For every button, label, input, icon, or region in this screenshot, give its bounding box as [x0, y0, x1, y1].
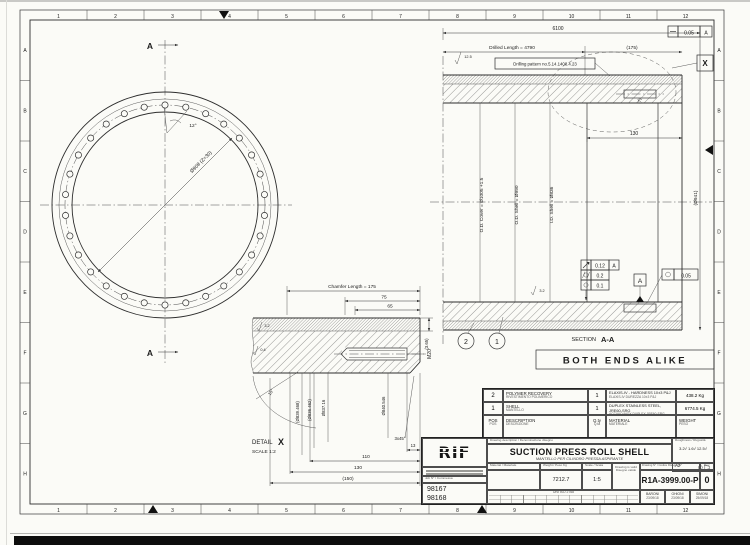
border-col-label: 9 — [513, 14, 516, 20]
bolt-hole — [141, 300, 147, 306]
dim-110: 110 — [362, 454, 370, 460]
fcf-roundness-value: 0.1 — [597, 284, 604, 290]
border-col-label: 5 — [285, 14, 288, 20]
bolt-hole — [261, 212, 267, 218]
overall-fcf: 0.05 A — [668, 26, 712, 37]
bolt-hole — [236, 135, 242, 141]
border-row-label: A — [717, 48, 721, 54]
border-col-label: 6 — [342, 14, 345, 20]
bolt-hole — [62, 212, 68, 218]
bom-header-desc: DESCRIPTION DESCRIZIONE — [503, 415, 588, 438]
job-number: 98167 — [427, 485, 482, 494]
bolt-hole — [162, 102, 168, 108]
detail-rough-bore: 0.4 — [260, 348, 265, 352]
circular-runout-icon — [583, 262, 590, 268]
dwg-number-value: R1A-3999.00-P — [640, 470, 700, 490]
dim-13: 13 — [411, 443, 416, 448]
hdr-it: MATERIALE — [609, 423, 673, 427]
border-row-label: A — [23, 48, 27, 54]
section-letter-bottom: A — [147, 348, 153, 358]
job-number: 98168 — [427, 494, 482, 503]
border-col-label: 11 — [626, 14, 631, 20]
rev-header: Rev. — [700, 463, 714, 470]
dim-130: 130 — [354, 465, 362, 471]
border-col-label: 2 — [114, 14, 117, 20]
bom-qty: 1 — [588, 389, 606, 402]
bolt-hole — [183, 300, 189, 306]
detail-marker-label: X — [702, 59, 708, 68]
bolt-hole — [88, 135, 94, 141]
bolt-hole — [67, 171, 73, 177]
od-cover-label: O.D. Cover = Ø1005 +1.5 — [479, 177, 485, 232]
border-row-label: B — [23, 109, 27, 115]
border-col-label: 5 — [285, 508, 288, 514]
tolerance-note: UNI ISO 2768 — [488, 491, 639, 495]
end-view: 12° Ø908 (Z=30) A A — [40, 40, 292, 364]
roughness-symbol-icon: √ — [685, 446, 687, 451]
sign-date: 25/09/18 — [691, 496, 713, 500]
bolt-hole — [249, 252, 255, 258]
bolt-hole — [203, 293, 209, 299]
bolt-hole — [249, 152, 255, 158]
border-row-label: D — [717, 230, 721, 236]
border-col-label: 12 — [683, 14, 689, 20]
valid-it: Disegno valido — [614, 469, 638, 472]
weight-label: Weight / Peso Kg — [541, 464, 581, 467]
dwg-number-header: Drawing N° / Codice Disegno N° — [640, 463, 700, 470]
bom-description: SHELL MANTELLO — [503, 402, 588, 415]
roughness-cell: Roughness / Rugosità 3.2√ 1.6√ 12.5√ — [672, 438, 714, 463]
bore-dia-4: Ø840.546 — [381, 396, 386, 415]
bolt-hole — [236, 269, 242, 275]
bolt-hole — [121, 111, 127, 117]
border-row-label: C — [23, 169, 27, 175]
overall-length-label: 6100 — [552, 26, 563, 32]
border-row-label: H — [23, 472, 27, 478]
od-shell-label: O.D. Shell = Ø990 — [514, 185, 520, 224]
dim-75: 75 — [381, 295, 387, 301]
hdr-it: DESCRIZIONE — [506, 423, 585, 427]
validity-cell: Drawing is valid Disegno valido — [612, 463, 640, 490]
border-col-label: 3 — [171, 508, 174, 514]
detail-rough-cover: 3.2 — [264, 324, 269, 328]
bom-header-material: MATERIAL MATERIALE — [606, 415, 676, 438]
bolt-hole — [75, 152, 81, 158]
desc-label: Drawing description / Denominazione dise… — [488, 439, 671, 442]
border-col-label: 9 — [513, 508, 516, 514]
bom-desc-it: MANTELLO — [506, 409, 585, 413]
border-col-label: 6 — [342, 508, 345, 514]
drawing-title: SUCTION PRESS ROLL SHELL — [488, 447, 671, 457]
drawing-title-it: MANTELLO PER CILINDRO PRESSA ASPIRANTE — [488, 457, 671, 461]
roughness-value: 12.5 — [697, 446, 705, 451]
tolerance-strip: UNI ISO 2768 — [487, 490, 640, 504]
detail-caption-ref: X — [278, 437, 284, 447]
bolt-hole — [257, 233, 263, 239]
section-caption-ref: A-A — [601, 335, 615, 344]
overall-fcf-value: 0.05 — [684, 31, 694, 37]
cover-thickness-label: (3.65) — [424, 338, 429, 350]
border-row-label: F — [23, 351, 26, 357]
border-col-label: 7 — [399, 14, 402, 20]
bolt-circle-label: Ø908 (Z=30) — [189, 150, 214, 175]
drill-pattern-note: Drilling pattern no.5.14.1408.4.23 — [513, 62, 577, 67]
balloon-shell: 1 — [495, 339, 499, 346]
bom-description: POLYMER RECOVERY RIVESTIMENTO POLIMERICO — [503, 389, 588, 402]
scanned-drawing-page: 112233445566778899101011111212AABBCCDDEE… — [0, 0, 750, 545]
bom-mat-it: ELAXIS-IV DUREZZA 10±3 P&J — [609, 396, 673, 400]
bolt-hole — [203, 111, 209, 117]
hole-ref-label: (7) — [637, 98, 642, 104]
scanner-edge-bar — [14, 536, 750, 545]
bolt-hole — [121, 293, 127, 299]
bom-material: DUPLEX STAINLESS STEEL, JRE60-SRG ACCIAI… — [606, 402, 676, 415]
section-caption: SECTION — [572, 337, 596, 343]
weight-header: Weight / Peso Kg — [540, 463, 582, 470]
bolt-hole — [261, 191, 267, 197]
bom-header-weight: WEIGHT PESO — [676, 415, 714, 438]
bolt-hole — [88, 269, 94, 275]
bolt-hole — [141, 104, 147, 110]
datum-label: A — [638, 278, 643, 285]
bom-material: ELAXIS-IV - HARDNESS 10±3 P&J ELAXIS-IV … — [606, 389, 676, 402]
section-letter-top: A — [147, 41, 153, 51]
roughness-symbol-icon: √ — [705, 446, 707, 451]
drawing-title-cell: SUCTION PRESS ROLL SHELL MANTELLO PER CI… — [487, 444, 672, 463]
border-col-label: 1 — [57, 508, 60, 514]
border-row-label: G — [717, 411, 721, 417]
roughness-label: Roughness / Rugosità — [673, 439, 713, 442]
dim-65: 65 — [387, 304, 393, 310]
border-col-label: 2 — [114, 508, 117, 514]
bore-dia-1: (Ø839.468) — [295, 401, 300, 423]
border-row-label: B — [717, 109, 721, 115]
border-row-label: E — [717, 290, 721, 296]
bolt-hole — [62, 191, 68, 197]
hdr-it: PESO — [679, 423, 711, 427]
border-col-label: 8 — [456, 14, 459, 20]
hdr-it: POS — [485, 423, 501, 427]
roundness-icon — [666, 272, 671, 277]
bom-desc-it: RIVESTIMENTO POLIMERICO — [506, 396, 585, 400]
border-col-label: 1 — [57, 14, 60, 20]
border-col-label: 4 — [228, 508, 231, 514]
overall-fcf-datum: A — [704, 31, 708, 37]
bore-dia-3: Ø837.16 — [321, 399, 326, 416]
scale-header: Scale / Scala — [582, 463, 612, 470]
bolt-hole — [67, 233, 73, 239]
fcf-cylindricity-value: 0.2 — [597, 274, 604, 280]
roughness-12-5: 12.5 — [464, 55, 471, 59]
border-row-label: C — [717, 169, 721, 175]
border-col-label: 3 — [171, 14, 174, 20]
border-col-label: 10 — [569, 14, 575, 20]
job-number-cell: 98167 98168 — [422, 483, 487, 504]
fcf-round-value: 0.05 — [681, 274, 691, 280]
bom-header-pos: POS POS — [483, 415, 503, 438]
roughness-symbol-icon: √ — [694, 446, 696, 451]
material-header: Material / Materiale — [487, 463, 540, 470]
border-col-label: 10 — [569, 508, 575, 514]
border-row-label: D — [23, 230, 27, 236]
material-value — [487, 470, 540, 490]
fcf-runout-value: 0.12 — [595, 264, 605, 270]
company-logo-cell: RIF — [422, 438, 487, 467]
chamfer-label: 3x45° — [394, 436, 405, 441]
fcf-runout-datum: A — [612, 264, 616, 270]
hdr-it: Q.tà — [590, 423, 604, 427]
detail-caption: DETAIL — [252, 440, 273, 446]
material-label: Material / Materiale — [488, 464, 539, 467]
signature-cell: SIMONI 25/09/18 — [690, 490, 714, 504]
end-width-label: 130 — [630, 131, 639, 137]
border-row-label: H — [717, 472, 721, 478]
dim-150: (150) — [342, 476, 354, 482]
datum-a: A — [634, 274, 646, 302]
both-ends-note: BOTH ENDS ALIKE — [563, 356, 687, 367]
angle-15-label: 15° — [267, 388, 275, 396]
bolt-hole — [162, 302, 168, 308]
company-address-cell — [422, 467, 487, 476]
bolt-hole — [221, 121, 227, 127]
scale-label: Scale / Scala — [583, 464, 611, 467]
fcf-round: 0.05 — [647, 269, 698, 303]
cylindricity-icon — [583, 272, 590, 278]
end-offset-label: (175) — [626, 45, 638, 51]
job-label: Job N° / Commessa — [423, 477, 486, 480]
rif-logo: RIF — [438, 443, 470, 462]
job-number-header: Job N° / Commessa — [422, 476, 487, 483]
bolt-hole — [103, 283, 109, 289]
bom-pos: 2 — [483, 389, 503, 402]
bom-pos: 1 — [483, 402, 503, 415]
bolt-hole — [257, 171, 263, 177]
bolt-hole — [75, 252, 81, 258]
id-shell-label: I.D. Shell = Ø836 — [549, 186, 555, 223]
bom-header-qty: Q.ty Q.tà — [588, 415, 606, 438]
bolt-hole — [221, 283, 227, 289]
border-row-label: F — [717, 351, 720, 357]
sign-date: 23/09/18 — [666, 496, 689, 500]
border-row-label: G — [23, 411, 27, 417]
border-row-label: E — [23, 290, 27, 296]
bom-weight: 438.2 Kg — [676, 389, 714, 402]
sign-date: 23/09/18 — [641, 496, 664, 500]
rev-label: Rev. — [701, 464, 713, 467]
signature-cell: GHIONI 23/09/18 — [665, 490, 690, 504]
border-col-label: 11 — [626, 508, 631, 514]
scale-value: 1:5 — [582, 470, 612, 490]
chamfer-length-label: Chamfer Length = 175 — [328, 284, 376, 290]
hole-angle-label: 12° — [189, 123, 196, 129]
border-col-label: 8 — [456, 508, 459, 514]
drilled-length-label: Drilled Length = 4790 — [489, 45, 535, 51]
dwg-label: Drawing N° / Codice Disegno N° — [641, 464, 699, 467]
border-col-label: 12 — [683, 508, 689, 514]
border-col-label: 7 — [399, 508, 402, 514]
roundness-icon — [584, 283, 588, 287]
bolt-hole — [103, 121, 109, 127]
rev-value: 0 — [700, 470, 714, 490]
balloon-cover: 2 — [464, 339, 468, 346]
detail-scale: SCALE 1:2 — [252, 449, 276, 455]
weight-value: 7212.7 — [540, 470, 582, 490]
outer-dia-label: (Ø941) — [693, 190, 699, 205]
roughness-3-2: 3.2 — [539, 289, 544, 293]
bore-dia-2: (Ø836.462) — [307, 399, 312, 421]
signature-cell: BARONI 23/09/18 — [640, 490, 665, 504]
border-col-label: 4 — [228, 14, 231, 20]
bom-qty: 1 — [588, 402, 606, 415]
bom-weight: 6774.5 Kg — [676, 402, 714, 415]
tolerance-grid — [489, 495, 638, 503]
scan-shadow — [10, 533, 750, 534]
detail-view: M20 (3.65) Chamfer Length = 175 75 65 15… — [251, 284, 433, 486]
bolt-hole — [183, 104, 189, 110]
section-view: X (7) 6100 0.05 A Drilled Length = 4790 … — [430, 26, 714, 369]
